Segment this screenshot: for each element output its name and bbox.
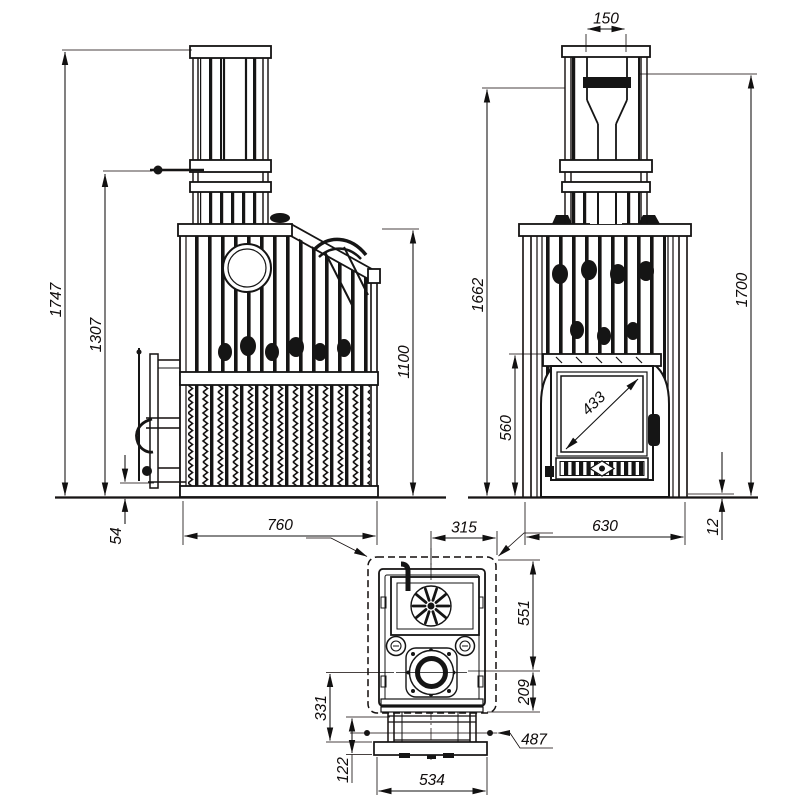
technical-drawing-page: 1747 1307 54 760 1100: [0, 0, 800, 800]
dim-handle-span: 487: [521, 732, 548, 749]
top-band: [519, 224, 691, 236]
dim-base-plate: 12: [705, 518, 722, 536]
side-view: 1747 1307 54 760 1100: [48, 46, 446, 545]
casing-leader-left: [306, 538, 367, 557]
dim-cage-height: 1100: [396, 345, 413, 379]
flue-flange: [396, 648, 467, 697]
dim-height-left: 1662: [470, 277, 487, 312]
hinge-tab: [545, 466, 554, 477]
latch-knob: [142, 466, 152, 476]
dim-width: 630: [592, 518, 618, 535]
dim-front-lip: 122: [335, 757, 352, 783]
pipe-collar: [583, 77, 631, 88]
mid-band: [180, 372, 378, 385]
firebox-front: [541, 354, 669, 497]
stone-cage-side: [178, 224, 380, 497]
dim-door-clearance: 54: [108, 527, 125, 545]
firebox-door-side: [137, 348, 187, 488]
top-view-structure: [306, 533, 553, 760]
cage-top-band: [190, 46, 271, 58]
dim-height-right: 1700: [734, 272, 751, 307]
stove-three-view-drawing: 1747 1307 54 760 1100: [0, 0, 800, 800]
dim-flue-offset: 315: [451, 520, 477, 537]
dim-flue-width: 150: [593, 11, 619, 28]
door-handle: [648, 414, 660, 446]
wing-nut-right: [456, 637, 475, 656]
chimney-cage-front: [560, 46, 652, 224]
front-panel: [374, 742, 487, 755]
top-view: 315 551 209 331 122 534: [306, 520, 553, 796]
cage-top-band: [562, 46, 650, 57]
front-section: [374, 712, 487, 759]
casing-leader-right: [499, 533, 554, 556]
stone-port: [223, 244, 271, 292]
dim-depth: 760: [267, 517, 293, 534]
dim-door-height: 560: [498, 415, 515, 441]
front-view: 150 1662 1700 560 433 630 12: [468, 11, 758, 546]
top-band: [178, 224, 292, 236]
dim-overall-height: 1747: [48, 281, 65, 317]
dim-rear-depth: 551: [516, 600, 533, 626]
dim-front-width: 534: [419, 772, 445, 789]
dim-mid-depth: 209: [516, 679, 533, 706]
bottom-band: [180, 486, 378, 497]
side-view-structure: [55, 46, 446, 498]
dim-damper-height: 1307: [88, 316, 105, 352]
slant-cap: [368, 269, 380, 283]
chimney-cage-side: [150, 46, 290, 224]
dim-front-depth: 331: [313, 695, 330, 721]
fan: [411, 586, 451, 626]
door-top-rail: [543, 354, 661, 366]
wing-nut-left: [387, 637, 406, 656]
